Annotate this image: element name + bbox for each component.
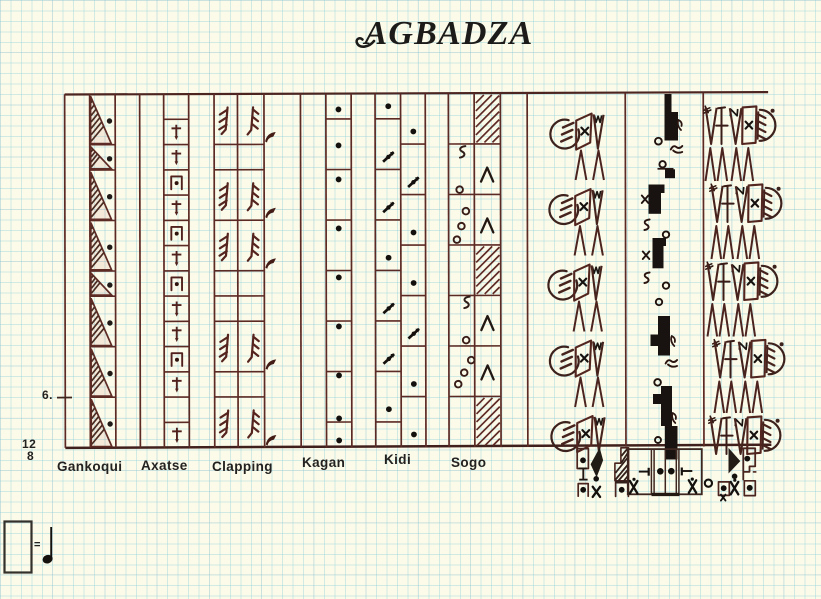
svg-text:AGBADZA: AGBADZA [363, 15, 534, 52]
